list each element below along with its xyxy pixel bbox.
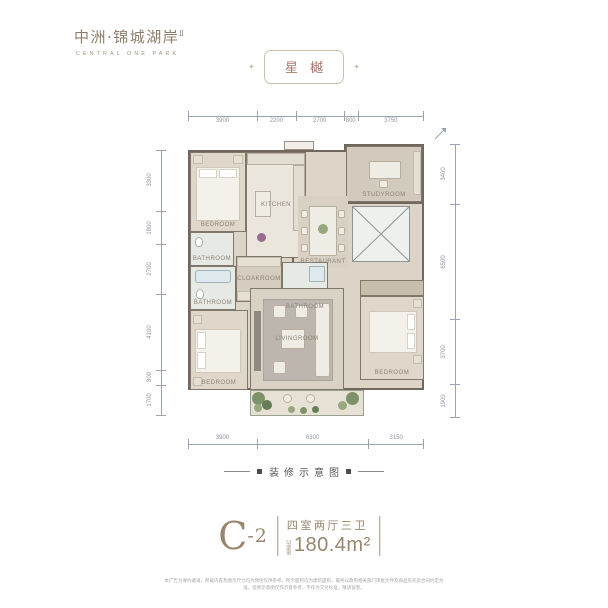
room-label: BEDROOM [375,370,410,376]
unit-code-suffix: -2 [247,525,268,547]
dim-value: 2700 [313,118,326,124]
dimension-row-bottom: 3900 6300 3150 [188,432,424,452]
sparkle-icon: ✦ [353,63,360,72]
dimension-row-top: 3900 2200 2700 800 3750 [188,106,424,130]
project-badge: ✦ 星樾 ✦ [264,50,344,84]
plant [346,392,359,405]
dim-segment: 1900 [438,384,462,418]
room-label: BEDROOM [202,380,237,386]
room-label: BATHROOM [286,304,324,310]
armchair [273,305,286,318]
dim-value: 800 [346,118,356,124]
room-label: RESTAURANT [300,259,345,265]
bookshelf [413,151,421,195]
toilet [195,237,203,247]
pillow [197,352,206,369]
room-bathroom-small: BATHROOM [190,232,234,266]
caption-square [257,469,262,474]
dim-segment: 800 [144,370,168,385]
nightstand [193,155,203,164]
room-label: STUDYROOM [362,192,406,198]
dim-value: 3150 [389,435,402,441]
kitchen-counter [247,153,305,165]
balcony-chair [306,394,315,403]
unit-code: C [218,517,247,555]
dim-value: 2700 [147,262,153,275]
pillow [199,169,217,178]
dim-segment: 3400 [438,144,462,204]
dim-segment: 1800 [144,211,168,244]
brand-name-en: CENTRAL ONE PARK [74,51,186,57]
balcony-chair [283,394,292,403]
plant [262,400,272,410]
dim-value: 2200 [270,118,283,124]
nightstand [193,377,202,386]
room-bathroom-tub: BATHROOM [190,266,236,310]
caption-line [224,471,250,472]
dim-segment: 6300 [257,432,368,452]
chair [301,244,308,252]
dim-value: 3700 [441,345,447,358]
dim-value: 3300 [147,174,153,187]
plant [254,404,262,412]
room-bedroom-bottomright: BEDROOM [360,296,424,380]
nightstand [233,155,243,164]
elevator-x-icon [353,207,409,261]
brand-name-cn: 中洲·锦城湖岸Ⅱ [74,26,186,47]
dim-segment: 3300 [144,150,168,211]
dim-segment: 3150 [368,432,424,452]
room-label: KITCHEN [261,202,291,208]
tv-console [254,311,261,371]
plant [300,407,307,414]
dim-segment: 2200 [257,106,296,130]
caption: 装修示意图 [224,464,384,479]
dim-value: 3900 [216,435,229,441]
dim-segment: 800 [344,106,358,130]
caption-label: 装修示意图 [269,464,344,479]
nightstand [413,355,422,364]
toilet [196,289,204,299]
desk [369,161,401,179]
unit-area: 180.4m² [294,535,371,555]
elevator-shaft [352,206,410,262]
dim-value: 800 [147,372,153,382]
dim-segment: 2700 [296,106,344,130]
sparkle-icon: ✦ [248,63,255,72]
dim-value: 4100 [147,325,153,338]
chair [301,227,308,235]
dim-segment: 3900 [188,432,257,452]
room-foyer [306,152,346,196]
divider [380,516,381,556]
nightstand [193,315,202,324]
wardrobe-strip [360,280,424,296]
wardrobe [237,257,281,267]
dim-value: 1700 [147,394,153,407]
floor-plan: BEDROOM KITCHEN STUDYROOM [188,144,424,420]
room-label: BATHROOM [193,256,231,262]
bathtub [195,270,231,283]
plant [257,233,266,242]
room-study: STUDYROOM [346,146,422,202]
dim-value: 3900 [216,118,229,124]
chair [379,180,388,188]
dim-value: 3400 [441,167,447,180]
disclaimer: 本广告为要约邀请，所载内容及图示尺寸均为预估仅供参考，所示面积均为建筑面积，最终… [164,578,444,592]
flue-box [284,141,314,150]
dim-segment: 2700 [144,244,168,294]
dimension-col-left: 3300 1800 2700 4100 800 1700 [144,150,168,416]
caption-line [358,471,384,472]
room-kitchen: KITCHEN [246,152,306,258]
room-bedroom-topleft: BEDROOM [190,152,246,232]
unit-layout: 四室两厅三卫 [287,517,371,533]
divider [277,516,278,556]
dimension-col-right: 3400 6500 3700 1900 [438,144,462,418]
plant [312,406,319,413]
floorplan-poster: 中洲·锦城湖岸Ⅱ CENTRAL ONE PARK ✦ 星樾 ✦ 3900 22… [0,0,608,608]
plant [288,406,295,413]
dim-value: 1800 [147,221,153,234]
shower [309,266,325,282]
armchair [273,361,286,374]
north-arrow-icon [432,124,450,142]
dim-segment: 6500 [438,204,462,319]
plant [318,224,328,234]
dim-segment: 4100 [144,294,168,370]
dim-value: 6500 [441,255,447,268]
room-label: BATHROOM [194,300,232,306]
dim-segment: 3700 [438,319,462,384]
chair [338,227,345,235]
dim-segment: 3900 [188,106,257,130]
pillow [219,169,237,178]
room-restaurant: RESTAURANT [298,196,348,268]
caption-square [346,469,351,474]
room-label: CLOAKROOM [237,276,281,282]
brand-logo: 中洲·锦城湖岸Ⅱ CENTRAL ONE PARK [74,26,186,57]
dim-value: 6300 [306,435,319,441]
dim-segment: 1700 [144,385,168,416]
chair [338,210,345,218]
chair [338,244,345,252]
chair [301,210,308,218]
room-label: LIVINGROOM [275,336,318,342]
nightstand [413,299,422,308]
project-badge-label: 星樾 [285,60,335,75]
dim-value: 1900 [441,395,447,408]
dim-value: 3750 [384,118,397,124]
room-bedroom-bottomleft: BEDROOM [190,310,248,390]
unit-info: C -2 四室两厅三卫 建面约 180.4m² [218,516,389,556]
dim-segment: 3750 [358,106,424,130]
brand-name-sup: Ⅱ [179,30,185,38]
plant [338,401,347,410]
pillow [197,332,206,349]
pillow [407,333,415,349]
unit-area-prefix: 建面约 [287,540,292,555]
pillow [407,314,415,330]
room-label: BEDROOM [201,222,236,228]
